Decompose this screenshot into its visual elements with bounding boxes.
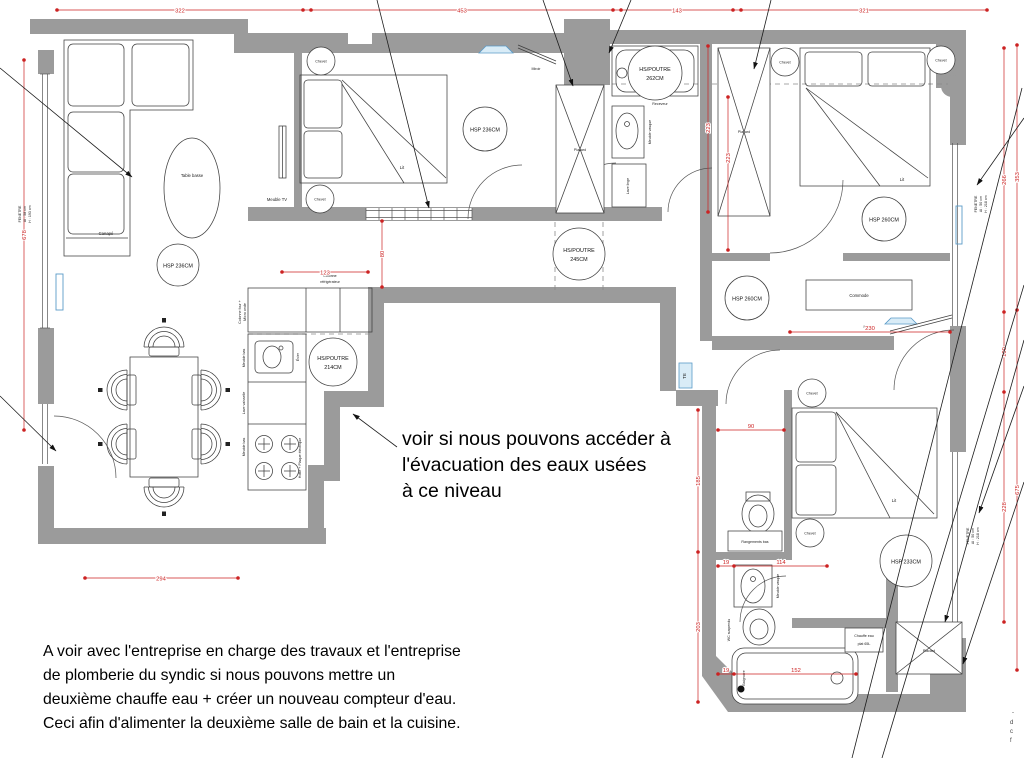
note-bottom-line3: deuxième chauffe eau + créer un nouveau … (43, 691, 456, 708)
tv-unit-label: Meuble TV (267, 197, 287, 202)
bed1: Lit (300, 75, 447, 183)
dim-143: 143 (672, 9, 682, 15)
leader-arrow (963, 482, 1024, 664)
window-right2-text-3: H : 218 cm (976, 527, 980, 544)
note-bottom-line1: A voir avec l'entreprise en charge des t… (43, 643, 461, 660)
wardrobe-bedroom1: Placard (556, 85, 604, 213)
svg-text:HSP 236CM: HSP 236CM (163, 264, 193, 270)
svg-text:HSP 236CM: HSP 236CM (470, 128, 500, 134)
window-left-text-1: FENETRE (18, 205, 22, 222)
window-right-bedroom2 (953, 143, 958, 326)
window-right1-text-1: FENETRE (974, 195, 978, 212)
svg-text:HSP 233CM: HSP 233CM (891, 560, 921, 566)
fridge-column-label-2: réfrigérateur (320, 280, 340, 284)
coffee-table: Table basse (164, 138, 220, 238)
bathtub: Baignoire (732, 648, 858, 704)
washing-machine: Lave linge (612, 164, 646, 207)
dim-678: 678 (22, 230, 28, 240)
ceiling-height-kitchen-beam: HS/POUTRE 214CM (309, 338, 357, 386)
svg-text:Chevet: Chevet (314, 198, 325, 202)
bedroom3: Lit Chevet Chevet HSP 233CM (792, 379, 937, 587)
dim-19b: 19 (723, 668, 729, 674)
note-bottom-line4: Ceci afin d'alimenter la deuxième salle … (43, 715, 460, 732)
clipped-text-fragment: - d c f (1010, 710, 1014, 744)
dim-90: 90 (748, 424, 754, 430)
svg-text:Rangements bas: Rangements bas (741, 540, 768, 544)
shower-label: Receveur (652, 102, 668, 106)
cooktop: Hotte + Plaque électrique (256, 436, 303, 480)
note-mid-line3: à ce niveau (402, 480, 502, 502)
dim-322: 322 (175, 9, 185, 15)
svg-text:-: - (1012, 710, 1014, 716)
window-right-bedroom3 (953, 452, 958, 638)
window-right2-text-2: AI : 50 cm (971, 528, 975, 544)
oven-column-label-2: Micro onde (243, 303, 247, 321)
bed2: Lit (800, 48, 930, 186)
water-heater: Chauffe eau plat 65L (845, 628, 883, 652)
svg-text:c: c (1010, 729, 1013, 735)
dishwasher-label: Lave vaisselle (242, 392, 246, 415)
dim-453: 453 (457, 9, 467, 15)
window-left-bottom (43, 404, 48, 464)
middle-room: HSP 260CM Commode Miroir (725, 276, 952, 334)
ceiling-height-middle-room: HSP 260CM (725, 276, 769, 320)
svg-text:WC suspendu: WC suspendu (727, 619, 731, 642)
ceiling-height-bedroom3: HSP 233CM (880, 535, 932, 587)
electrical-panel: TE (679, 363, 692, 388)
window-left-top (40, 74, 50, 328)
dim-321: 321 (859, 9, 869, 15)
base-unit-label-1: Meuble bas (242, 349, 246, 368)
svg-text:Chevet: Chevet (779, 61, 790, 65)
bathroom2: Meuble vasque WC suspendu Baignoire Chau… (727, 565, 962, 704)
svg-text:HSP 260CM: HSP 260CM (869, 218, 899, 224)
svg-text:f: f (1010, 738, 1012, 744)
bed2-label: Lit (900, 177, 905, 182)
low-storage: Rangements bas (728, 531, 782, 551)
note-plumbing: A voir avec l'entreprise en charge des t… (43, 643, 461, 732)
svg-text:HS/POUTRE: HS/POUTRE (563, 248, 595, 254)
dim-223-placard: 223 (726, 153, 732, 163)
svg-text:Placard: Placard (738, 130, 750, 134)
dresser-label: Commode (849, 293, 869, 298)
dim-19a: 19 (723, 560, 729, 566)
svg-text:262CM: 262CM (646, 76, 664, 82)
note-waste-water: voir si nous pouvons accéder à l'évacuat… (402, 428, 671, 502)
svg-text:Chauffe eau: Chauffe eau (854, 634, 874, 638)
bedroom1: Lit Chevet Chevet Miroir HSP 236CM Placa… (300, 45, 604, 213)
svg-text:Chevet: Chevet (315, 60, 326, 64)
window-right1-text-3: H : 218 cm (984, 195, 988, 212)
window-left-text-2: AI : 58 cm (23, 206, 27, 222)
leader-arrow (377, 0, 429, 208)
dim-114: 114 (776, 560, 786, 566)
dresser: Commode (806, 280, 912, 310)
note-bottom-line2: de plomberie du syndic si nous pouvons m… (43, 667, 395, 684)
nightstand: Chevet (798, 379, 826, 407)
svg-text:Placard: Placard (574, 148, 586, 152)
bed3: Lit (792, 408, 937, 518)
window-annotations: FENETRE AI : 58 cm H : 193 cm FENETRE AI… (18, 195, 988, 545)
coffee-table-label: Table basse (181, 173, 204, 178)
dim-80: 80 (380, 251, 386, 257)
svg-text:Chevet: Chevet (806, 392, 817, 396)
ceiling-height-bedroom2: HSP 260CM (862, 197, 906, 241)
ceiling-height-corridor-beam: HS/POUTRE 245CM (553, 228, 605, 280)
living-room: Canapé Table basse Meuble TV HSP 236CM (64, 40, 287, 516)
drain-point (738, 686, 745, 693)
svg-text:HS/POUTRE: HS/POUTRE (639, 67, 671, 73)
dim-353: 353 (1015, 172, 1021, 182)
dim-294: 294 (156, 577, 166, 583)
hood-label: Hotte + Plaque électrique (298, 438, 302, 478)
svg-text:245CM: 245CM (570, 257, 588, 263)
leader-arrow (0, 68, 132, 177)
note-mid-line1: voir si nous pouvons accéder à (402, 428, 671, 450)
vanity-bathroom1: Meuble vasque (612, 106, 652, 158)
nightstand: Chevet (306, 185, 334, 213)
dim-266: 266 (1002, 175, 1008, 185)
electrical-panel-label: TE (682, 373, 687, 379)
bathroom1: Receveur HS/POUTRE 262CM Meuble vasque L… (612, 46, 698, 207)
floor-plan-drawing: Canapé Table basse Meuble TV HSP 236CM C… (0, 0, 1024, 758)
svg-text:Meuble vasque: Meuble vasque (776, 574, 780, 598)
window-bedroom1-sill (366, 208, 472, 220)
window-right1-text-2: AI : 50 cm (979, 196, 983, 212)
bed1-label: Lit (400, 165, 405, 170)
base-unit-label-2: Meuble bas (242, 438, 246, 457)
svg-text:Meuble vasque: Meuble vasque (648, 120, 652, 144)
dim-203: 203 (696, 622, 702, 632)
svg-text:d: d (1010, 720, 1013, 726)
radiator-right (956, 206, 962, 244)
svg-text:Chevet: Chevet (804, 532, 815, 536)
kitchen-sink: Évier (255, 341, 300, 373)
svg-text:HSP 260CM: HSP 260CM (732, 297, 762, 303)
nightstand: Chevet (307, 47, 335, 75)
sink-label: Évier (295, 352, 300, 361)
dim-152: 152 (791, 668, 801, 674)
svg-text:HS/POUTRE: HS/POUTRE (317, 356, 349, 362)
svg-text:Chevet: Chevet (935, 59, 946, 63)
dim-123: 123 (320, 271, 330, 277)
dim-223-bath: 223 (706, 123, 712, 133)
bedroom2: Placard Lit Chevet Chevet HSP 260CM (718, 46, 955, 241)
nightstand: Chevet (796, 519, 824, 547)
svg-text:plat 65L: plat 65L (858, 642, 871, 646)
wardrobe-bottom-right: Placard (896, 622, 962, 674)
svg-text:Miroir: Miroir (532, 67, 542, 71)
note-leader-arrow (353, 414, 397, 447)
ceiling-height-living: HSP 236CM (157, 244, 199, 286)
wall-hung-toilet: WC suspendu (727, 609, 775, 645)
svg-text:Lave linge: Lave linge (626, 178, 630, 194)
sofa-label: Canapé (99, 231, 114, 236)
radiator-left (56, 274, 63, 310)
tv-unit: Meuble TV (267, 126, 287, 202)
bed3-label: Lit (892, 498, 897, 503)
oven-column-label-1: Colonne four + (238, 300, 242, 324)
svg-text:214CM: 214CM (324, 365, 342, 371)
kitchen: Colonne réfrigérateur Évier Hotte + Plaq… (238, 274, 372, 490)
leader-arrow (609, 0, 631, 53)
wc-room: Rangements bas (728, 492, 782, 551)
wardrobe-bedroom2: Placard (718, 48, 770, 216)
window-left-text-3: H : 193 cm (28, 205, 32, 222)
note-mid-line2: l'évacuation des eaux usées (402, 454, 647, 476)
dining-table (98, 318, 230, 516)
dim-185: 185 (696, 476, 702, 486)
dim-230: 230 (865, 326, 875, 332)
window-glyph-midroom (885, 318, 917, 324)
toilet-wc-room (742, 492, 774, 533)
floor-plan-page: Canapé Table basse Meuble TV HSP 236CM C… (0, 0, 1024, 758)
svg-text:Placard: Placard (923, 649, 935, 653)
sofa: Canapé (64, 40, 193, 256)
ceiling-height-bathroom1-beam: HS/POUTRE 262CM (628, 46, 682, 100)
nightstand: Chevet (771, 48, 799, 76)
ceiling-height-bedroom1: HSP 236CM (463, 107, 507, 151)
svg-text:Baignoire: Baignoire (742, 670, 746, 685)
dim-228: 228 (1002, 502, 1008, 512)
nightstand: Chevet (927, 46, 955, 74)
